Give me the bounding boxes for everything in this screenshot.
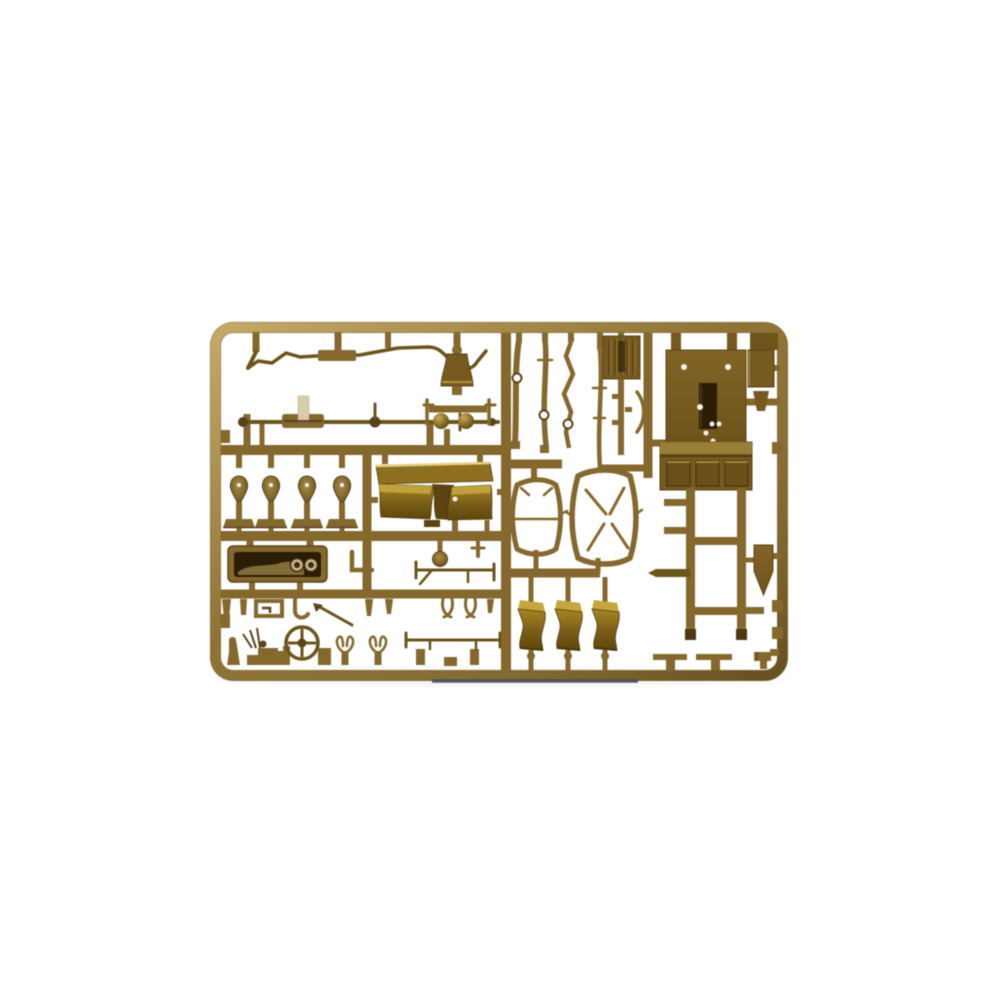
shovel-blade [754, 545, 773, 595]
cream-gate-block [298, 396, 309, 420]
pedal-fitting [243, 628, 278, 665]
leaf-spring-blades [511, 340, 606, 468]
fork-mount [370, 637, 386, 665]
mid-fittings [352, 536, 494, 584]
curved-covers [518, 600, 619, 670]
corner-block [750, 333, 778, 350]
bottom-fittings-right [653, 649, 779, 670]
product-photo [0, 0, 1000, 1000]
bench-seat [376, 463, 493, 527]
headlight [433, 413, 449, 429]
dashboard [228, 546, 327, 582]
spring-hanger [223, 454, 255, 528]
curved-cover [555, 600, 582, 670]
tie-rod-axle [238, 396, 498, 430]
bottle-pin [227, 637, 240, 665]
spear-rod [648, 569, 690, 577]
lamp-funnel [441, 345, 473, 395]
towing-rod [406, 633, 500, 666]
windshield-frame-small [505, 480, 567, 555]
fittings-row [222, 599, 494, 625]
curved-cover [592, 600, 619, 670]
cab-rear-panel [660, 333, 752, 490]
spring-hanger [326, 454, 358, 528]
curved-cover [518, 600, 545, 670]
steering-wheel [276, 627, 331, 665]
spring-hanger [291, 454, 323, 528]
spring-hangers [223, 454, 358, 528]
headlight [458, 413, 474, 429]
ladder-chassis [648, 488, 764, 640]
bottom-fittings-left [227, 627, 500, 666]
fork-mount [337, 637, 353, 665]
spring-hanger [255, 454, 287, 528]
headlight-pair [424, 400, 495, 450]
sprue-photo [0, 0, 1000, 1000]
radiator-plate [603, 336, 644, 455]
windshield-frame-large [566, 470, 642, 564]
